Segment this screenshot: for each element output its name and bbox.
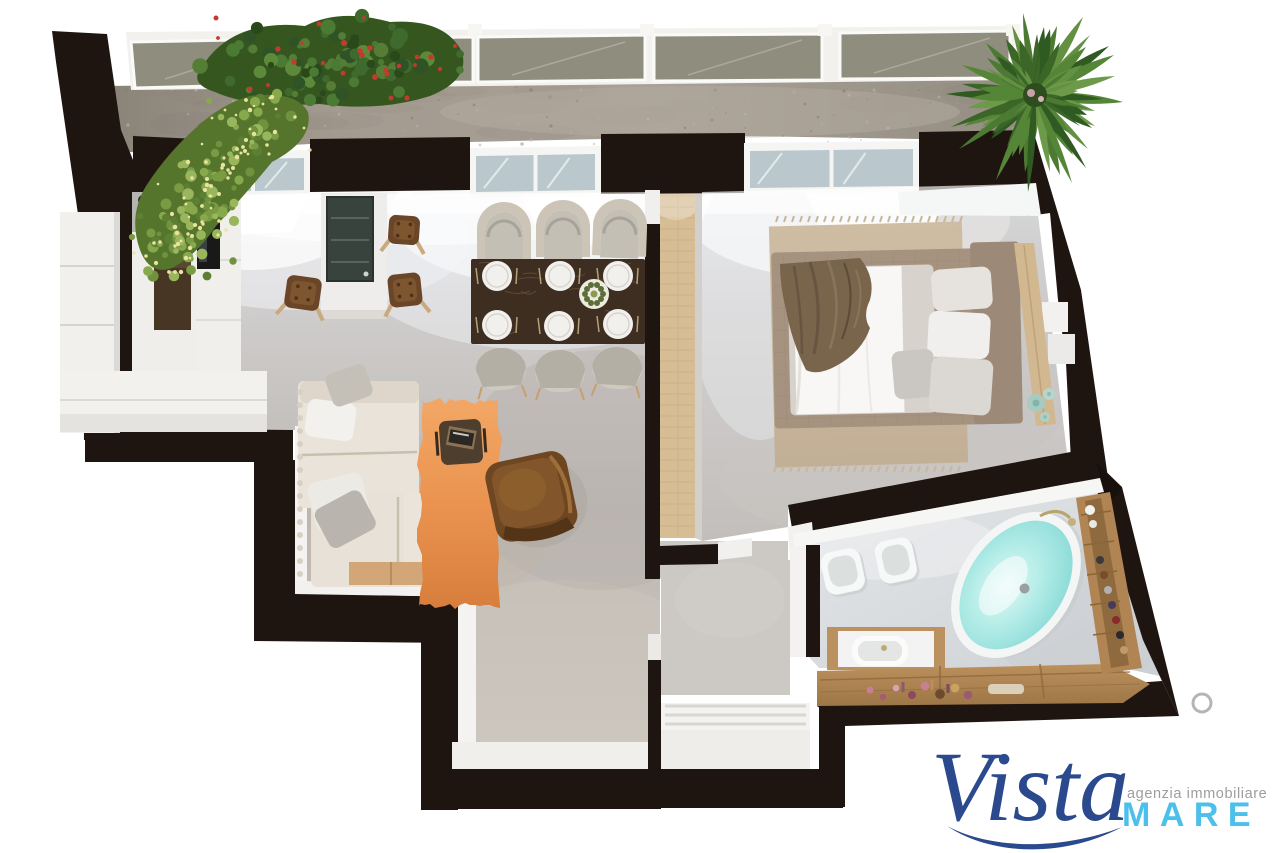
svg-text:Vista: Vista — [931, 731, 1129, 842]
svg-text:MARE: MARE — [1122, 796, 1260, 834]
